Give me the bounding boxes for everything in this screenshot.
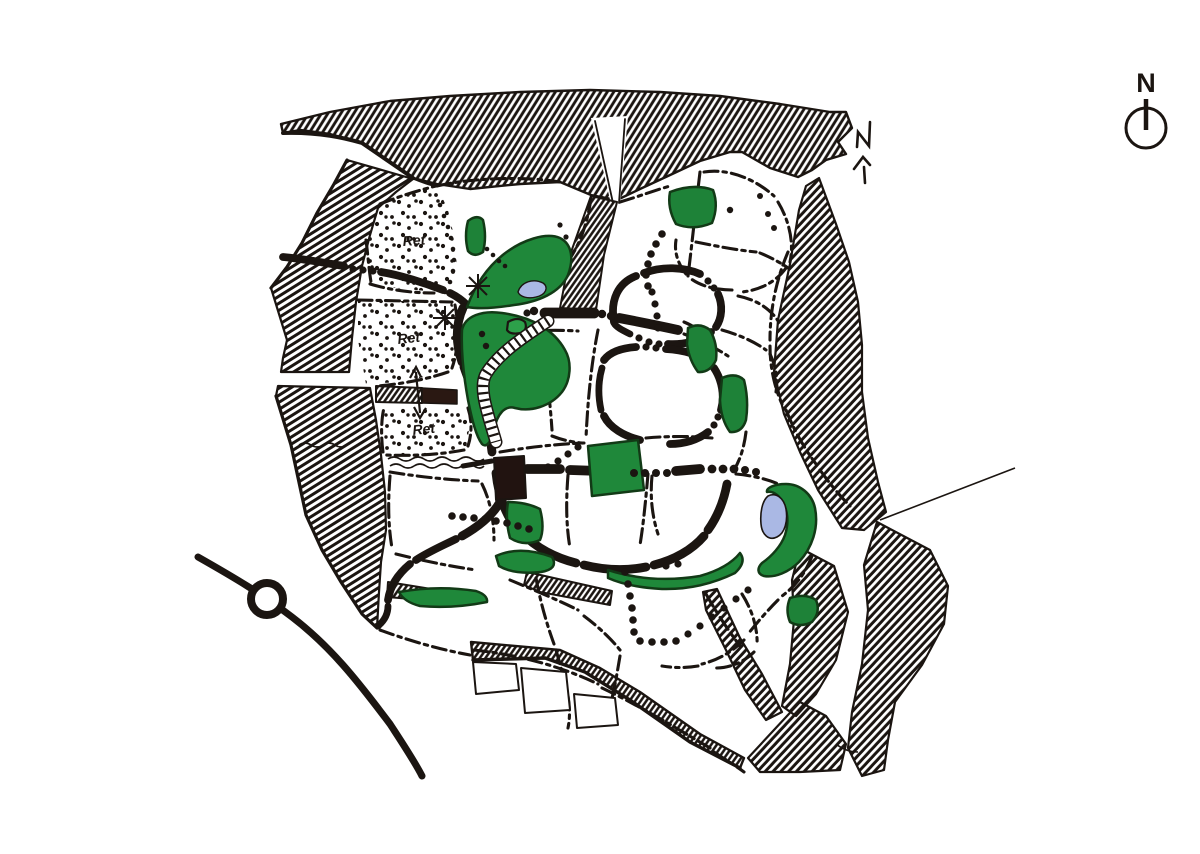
svg-text:N: N: [1136, 68, 1156, 98]
svg-text:Ret: Ret: [397, 329, 422, 347]
svg-text:Ret: Ret: [402, 231, 427, 249]
svg-text:Ret: Ret: [412, 420, 437, 438]
